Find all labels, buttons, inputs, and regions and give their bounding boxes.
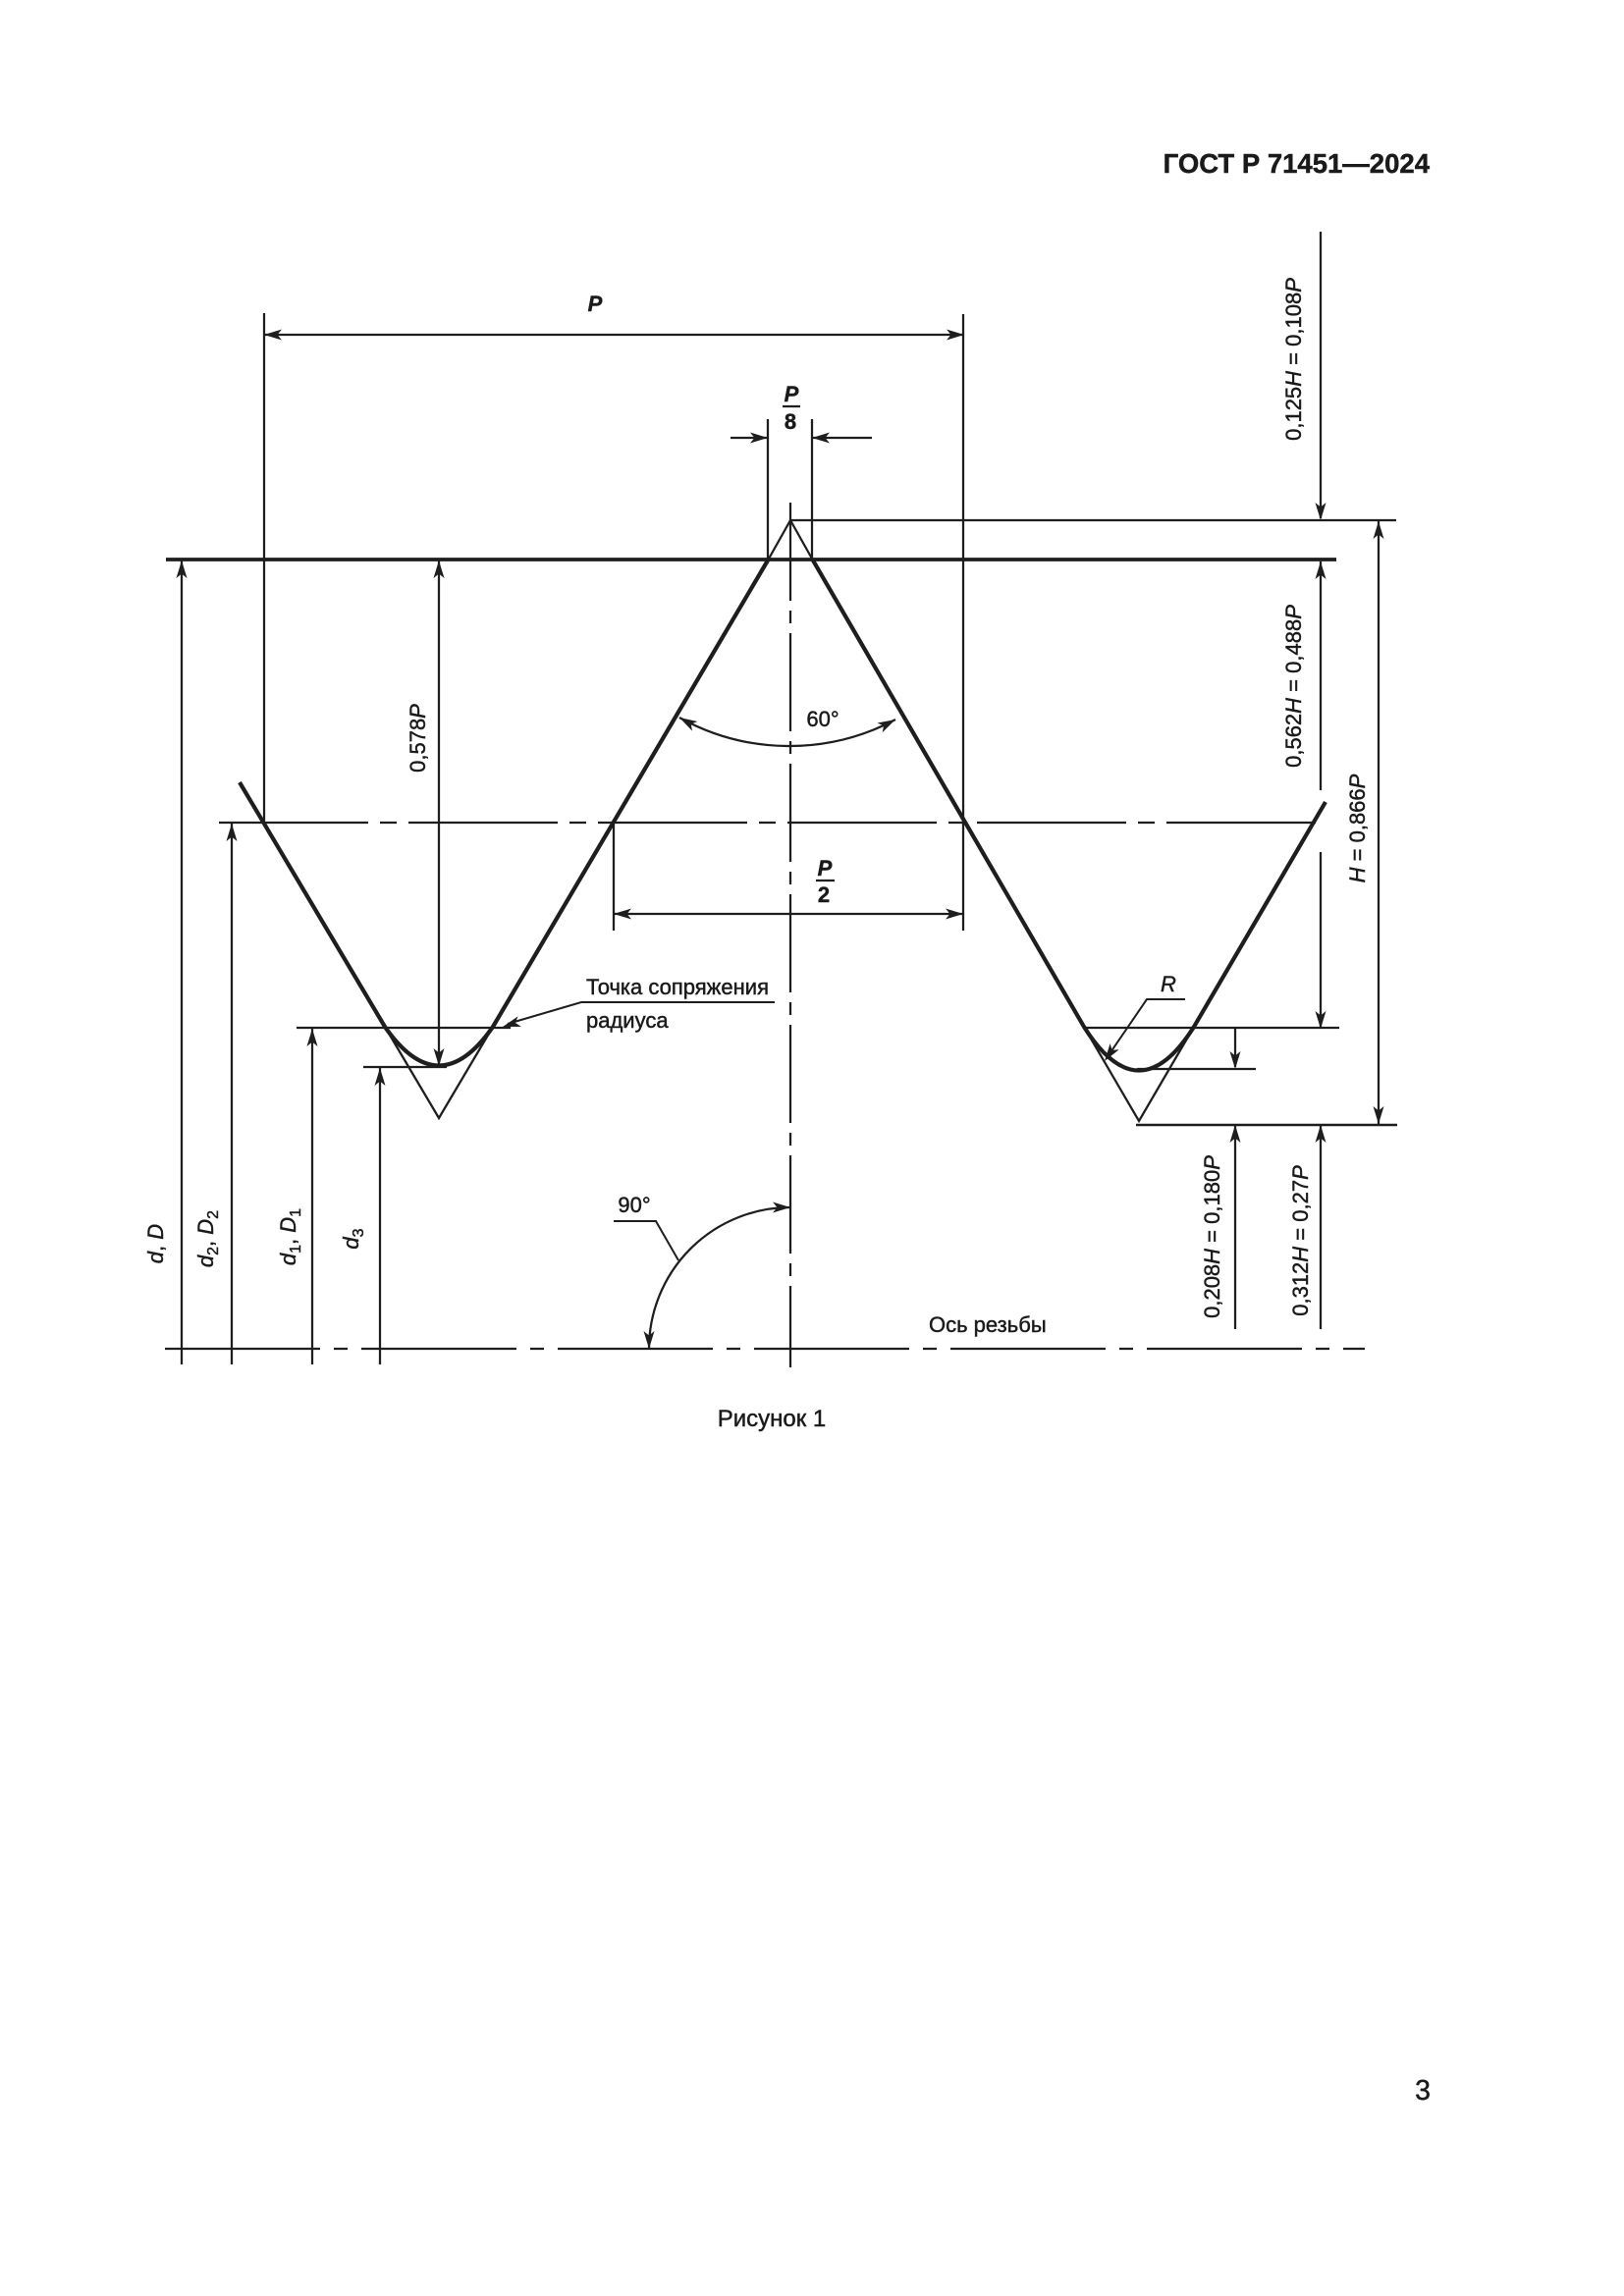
svg-text:60°: 60° [806,707,839,731]
svg-text:радиуса: радиуса [586,1008,669,1033]
svg-text:Рисунок 1: Рисунок 1 [718,1406,827,1432]
svg-text:P: P [785,382,799,406]
svg-text:d2, D2: d2, D2 [193,1210,222,1267]
svg-text:R: R [1161,972,1176,996]
svg-text:0,578P: 0,578P [406,704,430,773]
svg-text:ГОСТ Р 71451—2024: ГОСТ Р 71451—2024 [1164,148,1431,179]
svg-text:90°: 90° [618,1193,650,1217]
svg-text:d, D: d, D [143,1224,168,1263]
svg-text:H = 0,866P: H = 0,866P [1345,774,1370,882]
svg-text:2: 2 [818,882,830,907]
svg-text:0,208H = 0,180P: 0,208H = 0,180P [1200,1155,1224,1318]
svg-text:d1, D1: d1, D1 [276,1208,304,1265]
svg-text:8: 8 [785,409,796,434]
svg-text:P: P [588,292,603,316]
svg-text:0,562H = 0,488P: 0,562H = 0,488P [1281,605,1306,768]
svg-text:0,312H = 0,27P: 0,312H = 0,27P [1288,1165,1313,1316]
svg-text:P: P [818,856,833,881]
svg-text:Точка сопряжения: Точка сопряжения [586,975,769,999]
svg-text:d3: d3 [339,1228,367,1249]
svg-text:0,125H = 0,108P: 0,125H = 0,108P [1281,278,1306,441]
svg-text:3: 3 [1415,2075,1431,2107]
svg-text:Ось резьбы: Ось резьбы [929,1312,1047,1337]
